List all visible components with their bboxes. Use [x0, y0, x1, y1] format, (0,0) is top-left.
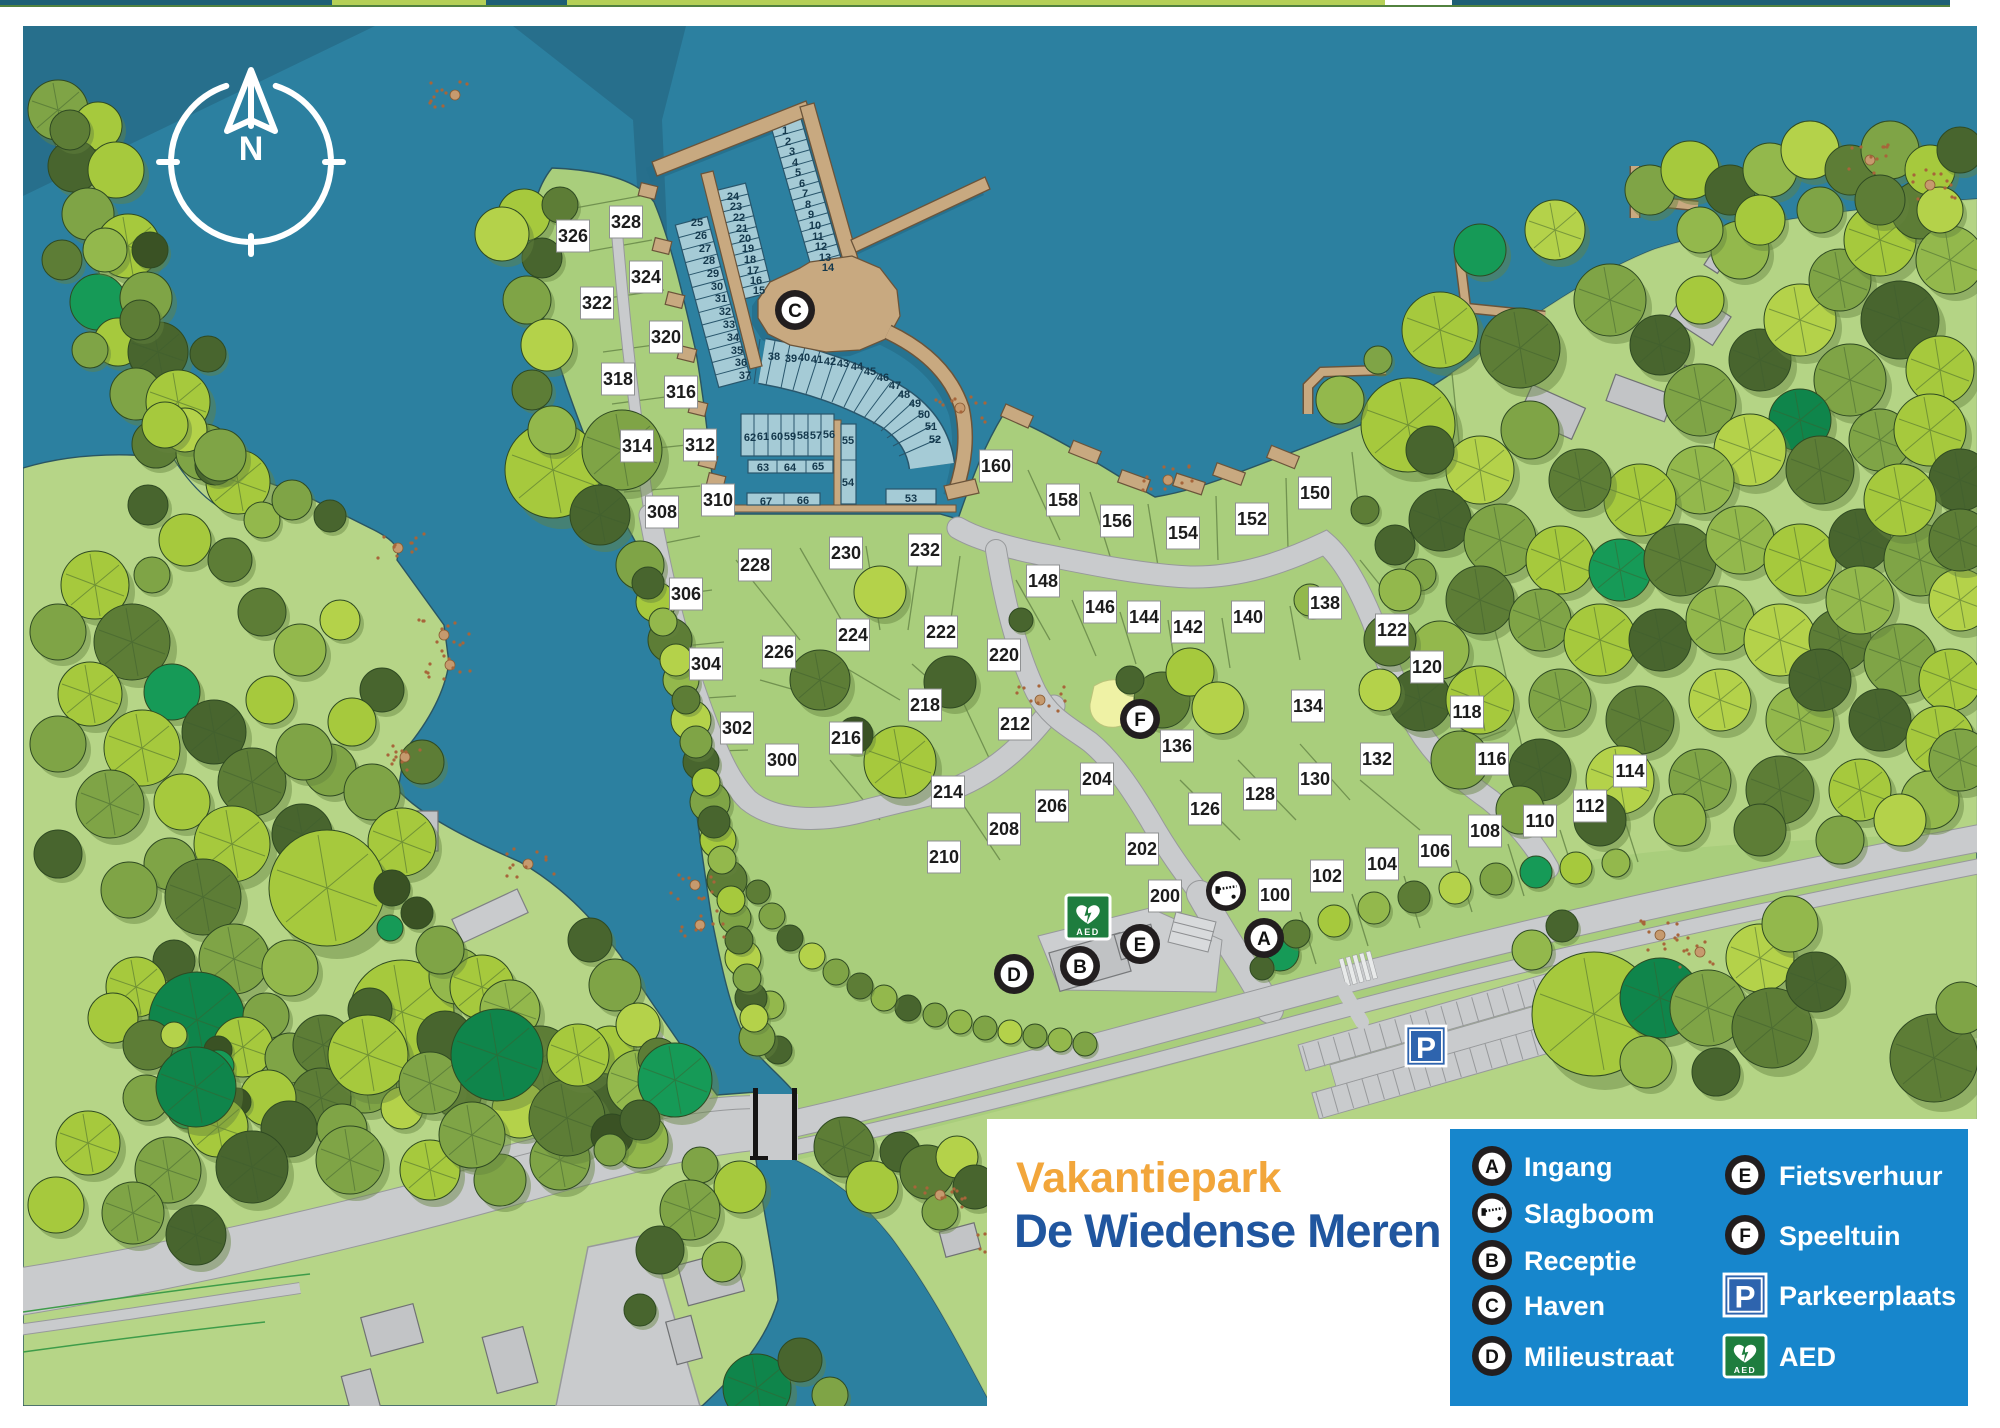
svg-text:25: 25: [691, 217, 703, 229]
svg-text:112: 112: [1575, 796, 1604, 816]
svg-text:60: 60: [771, 431, 783, 443]
svg-text:64: 64: [784, 462, 797, 474]
svg-text:32: 32: [719, 306, 731, 318]
svg-text:Fietsverhuur: Fietsverhuur: [1779, 1161, 1943, 1191]
svg-text:30: 30: [711, 281, 723, 293]
svg-text:AED: AED: [1734, 1365, 1756, 1375]
svg-text:160: 160: [981, 456, 1011, 476]
svg-text:214: 214: [933, 782, 963, 802]
svg-text:D: D: [1007, 965, 1021, 986]
svg-text:226: 226: [764, 642, 794, 662]
svg-text:Speeltuin: Speeltuin: [1779, 1221, 1901, 1251]
svg-text:134: 134: [1293, 696, 1323, 716]
svg-text:58: 58: [797, 430, 809, 442]
svg-text:114: 114: [1615, 761, 1644, 781]
svg-text:55: 55: [842, 435, 854, 447]
svg-text:66: 66: [797, 495, 809, 507]
svg-text:50: 50: [918, 409, 930, 421]
svg-text:Parkeerplaats: Parkeerplaats: [1779, 1281, 1956, 1311]
svg-text:104: 104: [1367, 854, 1397, 874]
svg-text:100: 100: [1260, 885, 1290, 905]
svg-text:132: 132: [1362, 749, 1392, 769]
svg-text:144: 144: [1129, 607, 1159, 627]
svg-text:140: 140: [1233, 607, 1263, 627]
svg-text:59: 59: [784, 431, 796, 443]
svg-text:158: 158: [1048, 490, 1078, 510]
svg-text:138: 138: [1310, 593, 1340, 613]
svg-text:46: 46: [877, 372, 889, 384]
svg-text:57: 57: [810, 430, 822, 442]
svg-text:P: P: [1416, 1032, 1436, 1065]
svg-text:F: F: [1739, 1226, 1751, 1247]
svg-text:56: 56: [823, 429, 835, 441]
svg-text:116: 116: [1477, 749, 1506, 769]
svg-text:300: 300: [767, 750, 797, 770]
svg-text:51: 51: [925, 421, 937, 433]
svg-text:15: 15: [753, 285, 765, 297]
svg-text:36: 36: [735, 357, 747, 369]
svg-text:61: 61: [757, 431, 769, 443]
svg-text:P: P: [1734, 1278, 1755, 1314]
svg-text:228: 228: [740, 555, 770, 575]
svg-text:208: 208: [989, 819, 1019, 839]
svg-text:110: 110: [1525, 811, 1554, 831]
svg-text:204: 204: [1082, 769, 1112, 789]
svg-text:308: 308: [647, 502, 677, 522]
svg-text:De Wiedense Meren: De Wiedense Meren: [1014, 1204, 1441, 1257]
svg-text:14: 14: [822, 262, 835, 274]
svg-text:102: 102: [1312, 866, 1342, 886]
svg-text:F: F: [1134, 710, 1146, 731]
svg-text:AED: AED: [1076, 927, 1100, 937]
svg-text:Milieustraat: Milieustraat: [1524, 1342, 1674, 1372]
svg-text:128: 128: [1245, 784, 1275, 804]
svg-text:Haven: Haven: [1524, 1291, 1605, 1321]
svg-text:122: 122: [1377, 620, 1407, 640]
svg-text:67: 67: [760, 496, 772, 508]
svg-text:200: 200: [1150, 886, 1180, 906]
svg-text:B: B: [1485, 1251, 1499, 1272]
svg-text:40: 40: [798, 352, 810, 364]
svg-text:Ingang: Ingang: [1524, 1152, 1613, 1182]
svg-text:320: 320: [651, 327, 681, 347]
svg-text:328: 328: [611, 212, 641, 232]
svg-text:29: 29: [707, 268, 719, 280]
svg-text:152: 152: [1237, 509, 1267, 529]
svg-text:63: 63: [757, 462, 769, 474]
svg-text:222: 222: [926, 622, 956, 642]
svg-text:120: 120: [1412, 657, 1442, 677]
svg-text:31: 31: [715, 293, 727, 305]
svg-text:314: 314: [622, 436, 652, 456]
svg-text:150: 150: [1300, 483, 1330, 503]
svg-text:224: 224: [838, 625, 868, 645]
svg-text:154: 154: [1168, 523, 1198, 543]
svg-text:62: 62: [744, 432, 756, 444]
svg-text:206: 206: [1037, 796, 1067, 816]
svg-text:318: 318: [603, 369, 633, 389]
svg-text:326: 326: [558, 226, 588, 246]
svg-text:26: 26: [695, 230, 707, 242]
svg-text:216: 216: [831, 728, 861, 748]
svg-text:38: 38: [768, 351, 780, 363]
svg-text:316: 316: [666, 382, 696, 402]
svg-text:37: 37: [739, 370, 751, 382]
svg-text:41: 41: [811, 354, 823, 366]
svg-text:43: 43: [837, 358, 849, 370]
svg-text:148: 148: [1028, 571, 1058, 591]
svg-text:D: D: [1485, 1347, 1499, 1368]
svg-text:210: 210: [929, 847, 959, 867]
svg-text:65: 65: [812, 461, 824, 473]
svg-text:53: 53: [905, 493, 917, 505]
svg-text:156: 156: [1102, 511, 1132, 531]
svg-text:Slagboom: Slagboom: [1524, 1199, 1655, 1229]
svg-text:146: 146: [1085, 597, 1115, 617]
svg-text:52: 52: [929, 434, 941, 446]
svg-text:54: 54: [842, 477, 855, 489]
svg-text:Vakantiepark: Vakantiepark: [1016, 1154, 1281, 1202]
svg-text:35: 35: [731, 345, 743, 357]
svg-text:126: 126: [1190, 799, 1220, 819]
svg-text:E: E: [1134, 935, 1147, 956]
svg-text:C: C: [1485, 1296, 1499, 1317]
svg-text:230: 230: [831, 543, 861, 563]
svg-text:324: 324: [631, 267, 661, 287]
svg-text:N: N: [239, 130, 264, 168]
svg-text:306: 306: [671, 584, 701, 604]
svg-text:312: 312: [685, 435, 715, 455]
svg-text:27: 27: [699, 243, 711, 255]
svg-text:A: A: [1257, 929, 1271, 950]
svg-text:322: 322: [582, 293, 612, 313]
svg-text:34: 34: [727, 332, 740, 344]
svg-text:33: 33: [723, 319, 735, 331]
svg-text:106: 106: [1420, 841, 1450, 861]
svg-text:220: 220: [989, 645, 1019, 665]
svg-text:118: 118: [1452, 702, 1481, 722]
svg-text:302: 302: [722, 718, 752, 738]
svg-text:B: B: [1073, 957, 1087, 978]
svg-text:C: C: [788, 301, 802, 322]
svg-text:232: 232: [910, 540, 940, 560]
svg-text:304: 304: [691, 654, 721, 674]
svg-text:Receptie: Receptie: [1524, 1246, 1637, 1276]
svg-text:136: 136: [1162, 736, 1192, 756]
svg-text:202: 202: [1127, 839, 1157, 859]
svg-text:28: 28: [703, 255, 715, 267]
svg-text:310: 310: [703, 490, 733, 510]
svg-text:A: A: [1485, 1157, 1499, 1178]
svg-text:218: 218: [910, 695, 940, 715]
svg-text:108: 108: [1470, 821, 1500, 841]
svg-text:E: E: [1739, 1166, 1752, 1187]
svg-text:130: 130: [1300, 769, 1330, 789]
svg-text:39: 39: [785, 353, 797, 365]
svg-text:AED: AED: [1779, 1342, 1836, 1372]
svg-text:142: 142: [1173, 617, 1203, 637]
svg-text:44: 44: [851, 361, 864, 373]
svg-text:45: 45: [864, 366, 876, 378]
svg-text:42: 42: [824, 356, 836, 368]
svg-text:212: 212: [1000, 714, 1030, 734]
